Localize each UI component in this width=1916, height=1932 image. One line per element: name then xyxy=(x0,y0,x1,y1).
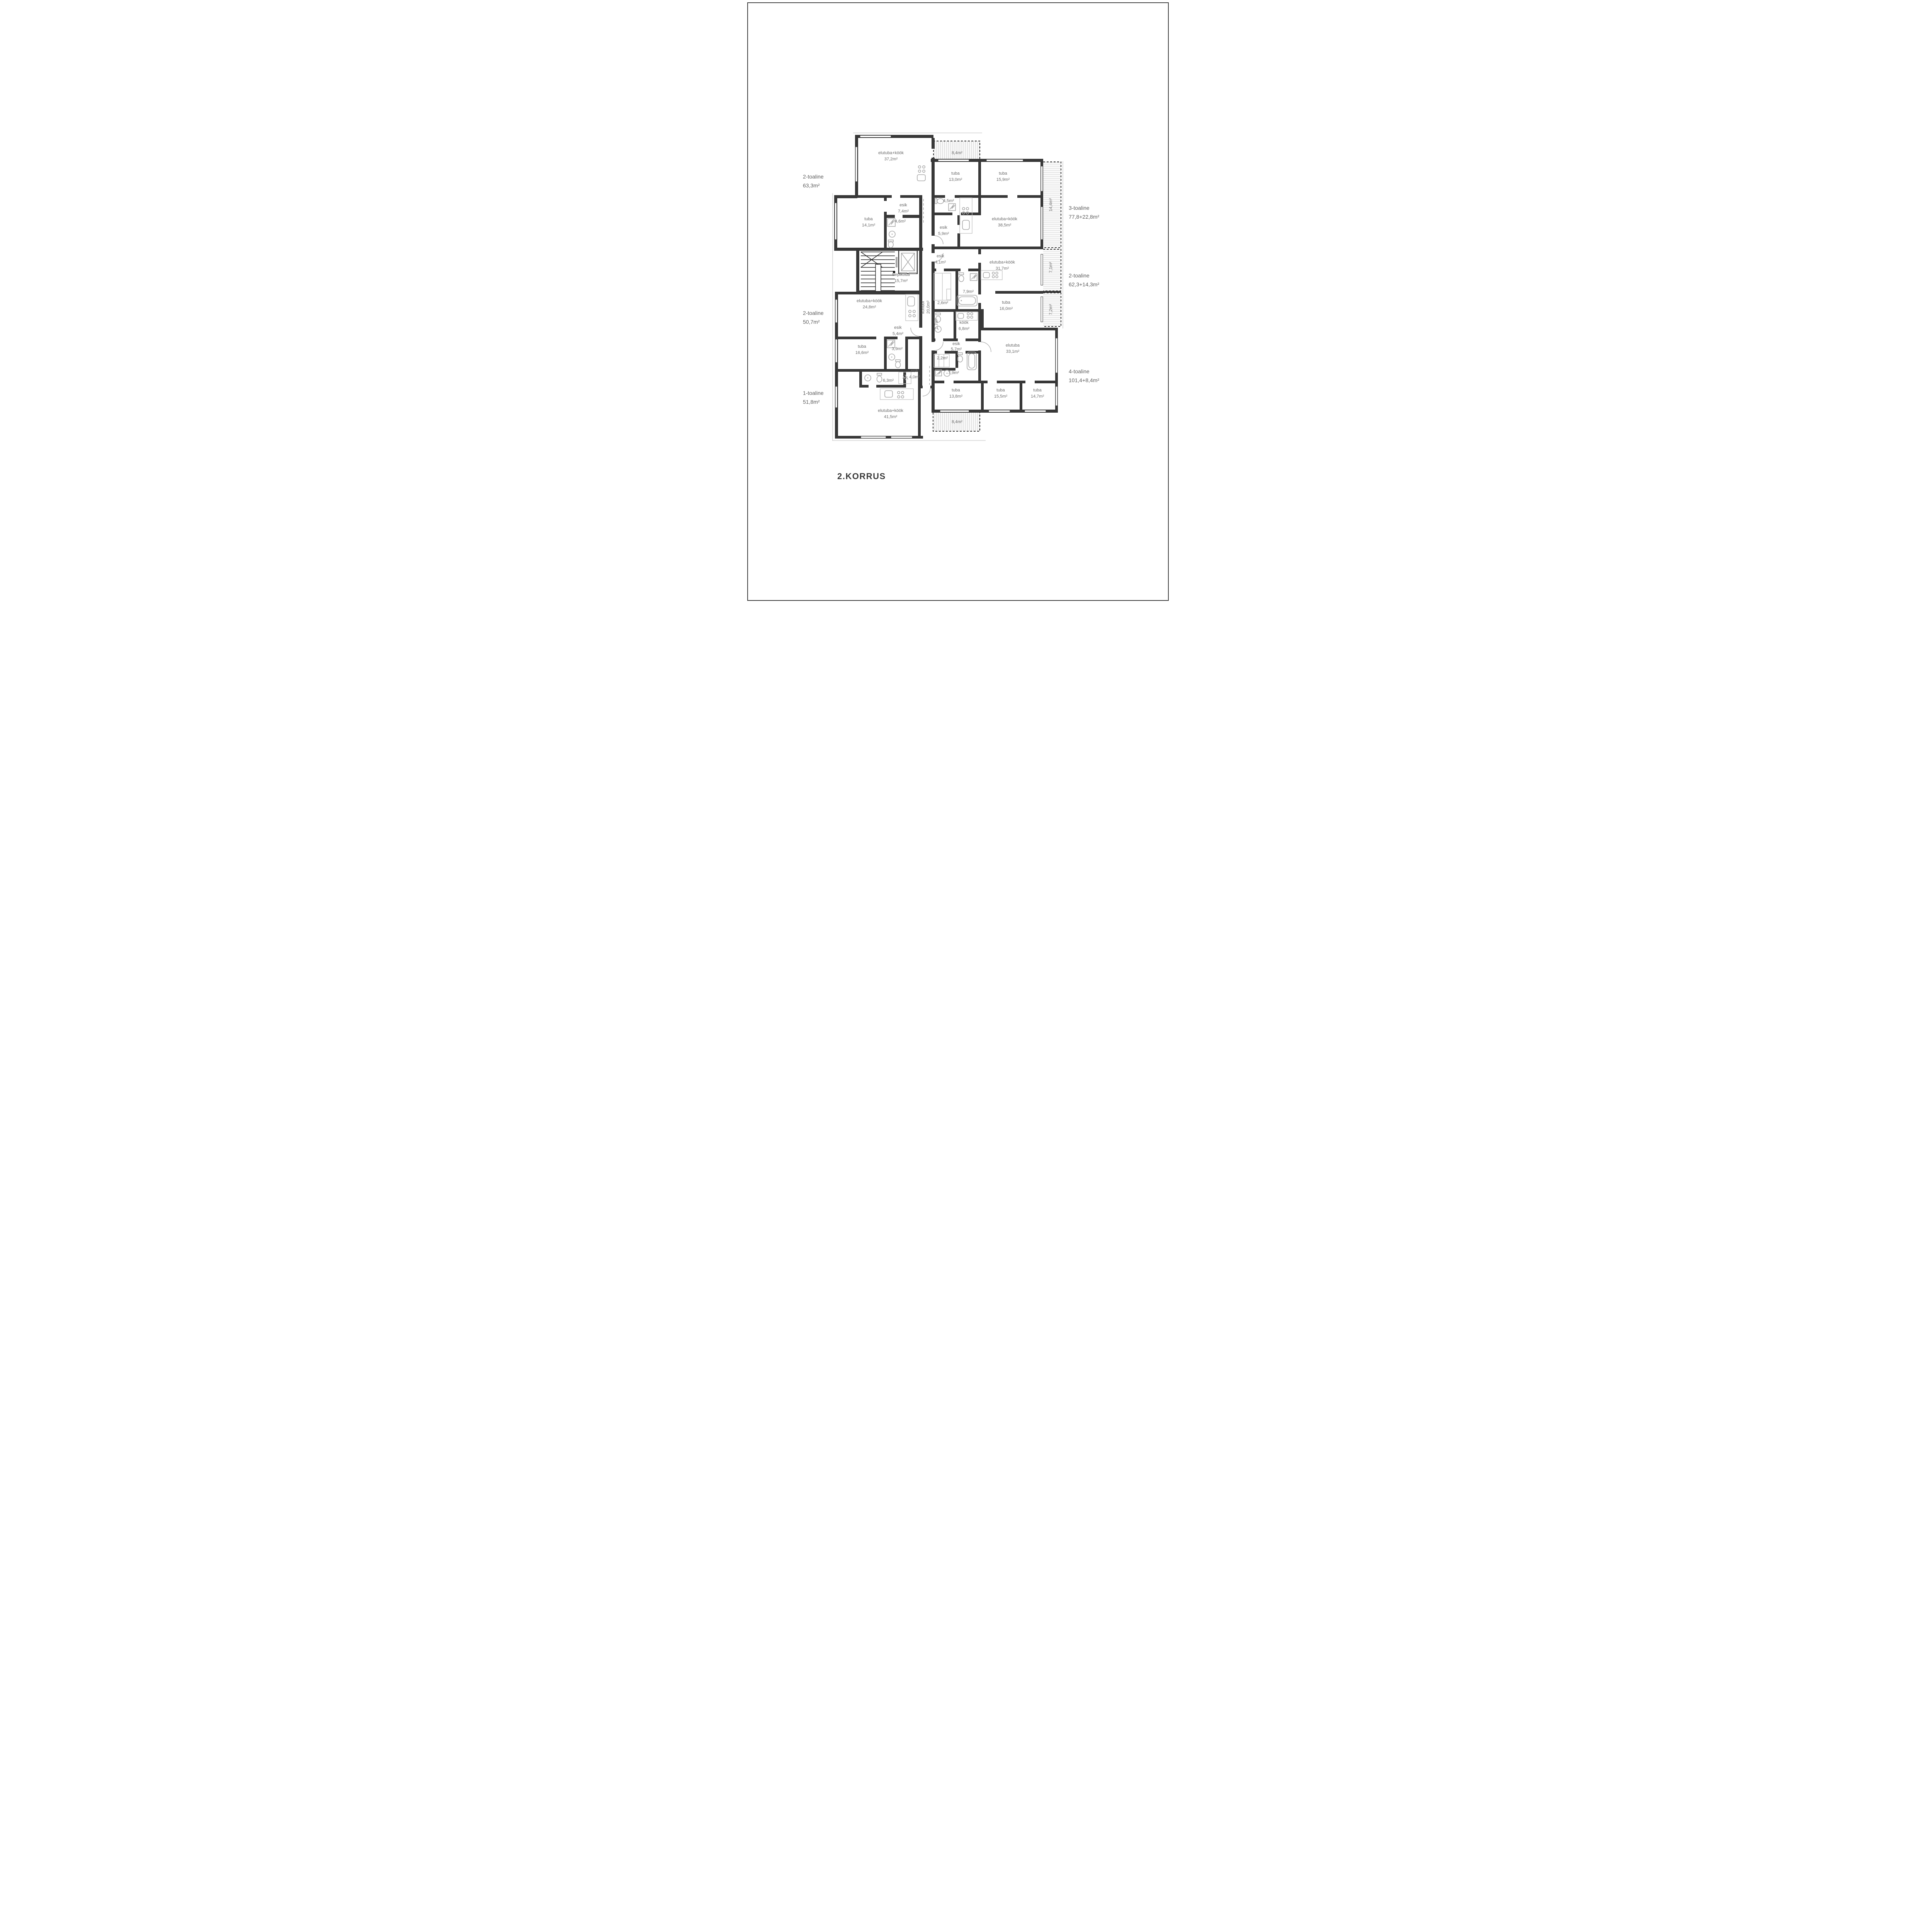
room-label-d-esik-area: 4,0m² xyxy=(909,375,920,379)
room-label-h-tuba3-area: 14,7m² xyxy=(1031,394,1044,399)
door-arc-h-living xyxy=(981,342,991,352)
room-label-f-tuba2-name: tuba xyxy=(999,171,1007,176)
room-label-f-tuba2-area: 15,9m² xyxy=(996,177,1010,182)
apartment-label-left-2-area: 51,8m² xyxy=(803,399,820,405)
toilet-icon xyxy=(958,353,963,362)
room-label-f-esik-area: 5,9m² xyxy=(938,231,949,236)
room-label-f-esik-name: esik xyxy=(940,225,947,230)
room-label-h-kitchen-area: 6,8m² xyxy=(959,327,969,331)
room-label-c-esik-area: 5,4m² xyxy=(893,332,903,336)
apartment-label-left-1-area: 50,7m² xyxy=(803,319,820,325)
room-label-corridor-name: koridor xyxy=(921,301,925,314)
room-label-a-esik-name: esik xyxy=(899,203,907,207)
shower-icon xyxy=(935,370,942,376)
room-label-d-esik-name: esik xyxy=(911,369,918,373)
room-label-g-balcony1: 7,1m² xyxy=(1049,262,1053,273)
room-label-f-bath: 4,5m² xyxy=(943,199,954,203)
elevator-icon xyxy=(896,250,917,274)
toilet-icon xyxy=(888,240,893,248)
room-label-c-living-area: 24,8m² xyxy=(863,305,876,310)
room-label-h-tuba1-name: tuba xyxy=(952,388,960,393)
room-label-h-kitchen-name: köök xyxy=(959,320,969,325)
apartment-label-right-1-area: 62,3+14,3m² xyxy=(1069,281,1099,287)
door-arc-h-esik xyxy=(935,342,943,350)
apartment-label-left-0-type: 2-toaline xyxy=(803,173,824,180)
kitchen-counter-icon xyxy=(956,312,978,320)
room-label-g-tuba-name: tuba xyxy=(1002,300,1010,305)
room-label-f-tuba1-area: 13,0m² xyxy=(949,177,962,182)
room-label-h-living-name: elutuba xyxy=(1006,343,1020,348)
toilet-icon xyxy=(877,373,882,382)
toilet-icon xyxy=(935,199,944,204)
door-arc-f-esik xyxy=(935,236,943,244)
kitchen-counter-icon xyxy=(880,389,913,400)
room-label-stairwell-name: trepikoda xyxy=(892,272,910,277)
apartment-label-right-2-area: 101,4+8,4m² xyxy=(1069,377,1099,383)
room-label-h-esik-area: 5,7m² xyxy=(951,347,962,352)
room-label-g-tuba-area: 16,0m² xyxy=(1000,306,1013,311)
room-label-bottom-balcony: 8,4m² xyxy=(952,420,962,424)
room-label-a-living-area: 37,2m² xyxy=(884,157,898,162)
washing-machine-icon xyxy=(949,204,955,211)
room-label-h-tuba3-name: tuba xyxy=(1033,388,1042,393)
room-label-c-bath: 3,9m² xyxy=(892,347,903,351)
apartment-label-left-0-area: 63,3m² xyxy=(803,182,820,189)
room-label-h-wc: 2,2m² xyxy=(937,356,948,361)
room-label-c-living-name: elutuba+köök xyxy=(857,299,882,303)
kitchen-counter-icon xyxy=(906,294,918,321)
room-label-c-tuba-area: 16,6m² xyxy=(855,350,869,355)
room-label-g-wc: 2,6m² xyxy=(937,301,948,305)
room-label-a-esik-area: 7,4m² xyxy=(898,209,909,214)
kitchen-counter-icon xyxy=(981,270,1002,280)
room-label-d-bath: 6,3m² xyxy=(883,378,894,383)
apartment-label-right-1-type: 2-toaline xyxy=(1069,272,1090,279)
bathtub-icon xyxy=(957,295,977,306)
room-label-g-esik-area: 4,1m² xyxy=(935,260,946,265)
room-label-g-bath: 7,9m² xyxy=(963,289,974,294)
balcony-top xyxy=(933,141,980,159)
floor-title: 2.KORRUS xyxy=(837,471,886,481)
room-label-corridor-area: 20,0m² xyxy=(926,301,931,314)
dashed-markers xyxy=(923,199,930,385)
room-label-c-tuba-name: tuba xyxy=(858,344,866,349)
room-label-a-tuba-area: 14,1m² xyxy=(862,223,876,228)
room-label-top-balcony: 8,4m² xyxy=(952,151,962,155)
room-label-h-bath: 7,9m² xyxy=(948,371,959,375)
room-label-g-balcony2: 7,2m² xyxy=(1049,304,1053,315)
room-label-d-living-area: 41,5m² xyxy=(884,415,898,419)
room-label-h-esik-name: esik xyxy=(952,342,960,346)
sink-icon xyxy=(889,354,895,360)
shower-icon xyxy=(970,274,977,281)
room-label-h-tuba1-area: 13,8m² xyxy=(949,394,963,399)
room-label-a-tuba-name: tuba xyxy=(864,217,873,221)
wardrobe-icon xyxy=(934,273,951,300)
toilet-icon xyxy=(896,360,901,368)
stove-icon xyxy=(917,166,925,181)
room-label-stairwell-area: 15,7m² xyxy=(894,279,908,283)
room-label-c-esik-name: esik xyxy=(894,325,902,330)
shower-icon xyxy=(887,219,895,226)
bathtub-icon xyxy=(967,352,976,370)
room-label-g-esik-name: esik xyxy=(937,254,944,259)
room-label-f-balcony: 14,4m² xyxy=(1049,198,1053,212)
apartment-label-left-1-type: 2-toaline xyxy=(803,310,824,316)
room-label-h-closet: 1,7m² xyxy=(934,318,939,329)
room-label-h-tuba2-area: 15,5m² xyxy=(994,394,1008,399)
room-label-a-living-name: elutuba+köök xyxy=(878,151,904,155)
sink-icon xyxy=(889,231,895,237)
door-arc-entrance xyxy=(923,388,930,396)
room-label-d-living-name: elutuba+köök xyxy=(878,408,903,413)
toilet-icon xyxy=(959,273,964,282)
room-label-h-living-area: 33,1m² xyxy=(1006,349,1020,354)
floor-plan-drawing: elutuba+köök 37,2m² 8,4m² tuba 13,0m² tu… xyxy=(745,0,1171,603)
room-label-f-living-name: elutuba+köök xyxy=(992,217,1017,221)
room-label-f-tuba1-name: tuba xyxy=(951,171,960,176)
room-label-g-living-name: elutuba+köök xyxy=(989,260,1015,265)
stairs-icon xyxy=(861,252,895,291)
room-label-f-living-area: 38,5m² xyxy=(998,223,1012,228)
sink-icon xyxy=(865,375,871,381)
room-label-a-bath: 4,6m² xyxy=(895,219,906,224)
door-arc-c-esik xyxy=(911,328,919,336)
room-label-g-living-area: 31,7m² xyxy=(996,266,1009,271)
kitchen-counter-icon xyxy=(960,198,972,233)
apartment-label-left-2-type: 1-toaline xyxy=(803,390,824,396)
floor-plan-page: elutuba+köök 37,2m² 8,4m² tuba 13,0m² tu… xyxy=(745,0,1171,603)
apartment-label-right-0-area: 77,8+22,8m² xyxy=(1069,214,1099,220)
room-label-h-tuba2-name: tuba xyxy=(996,388,1005,393)
apartment-label-right-2-type: 4-toaline xyxy=(1069,368,1090,374)
apartment-label-right-0-type: 3-toaline xyxy=(1069,205,1090,211)
